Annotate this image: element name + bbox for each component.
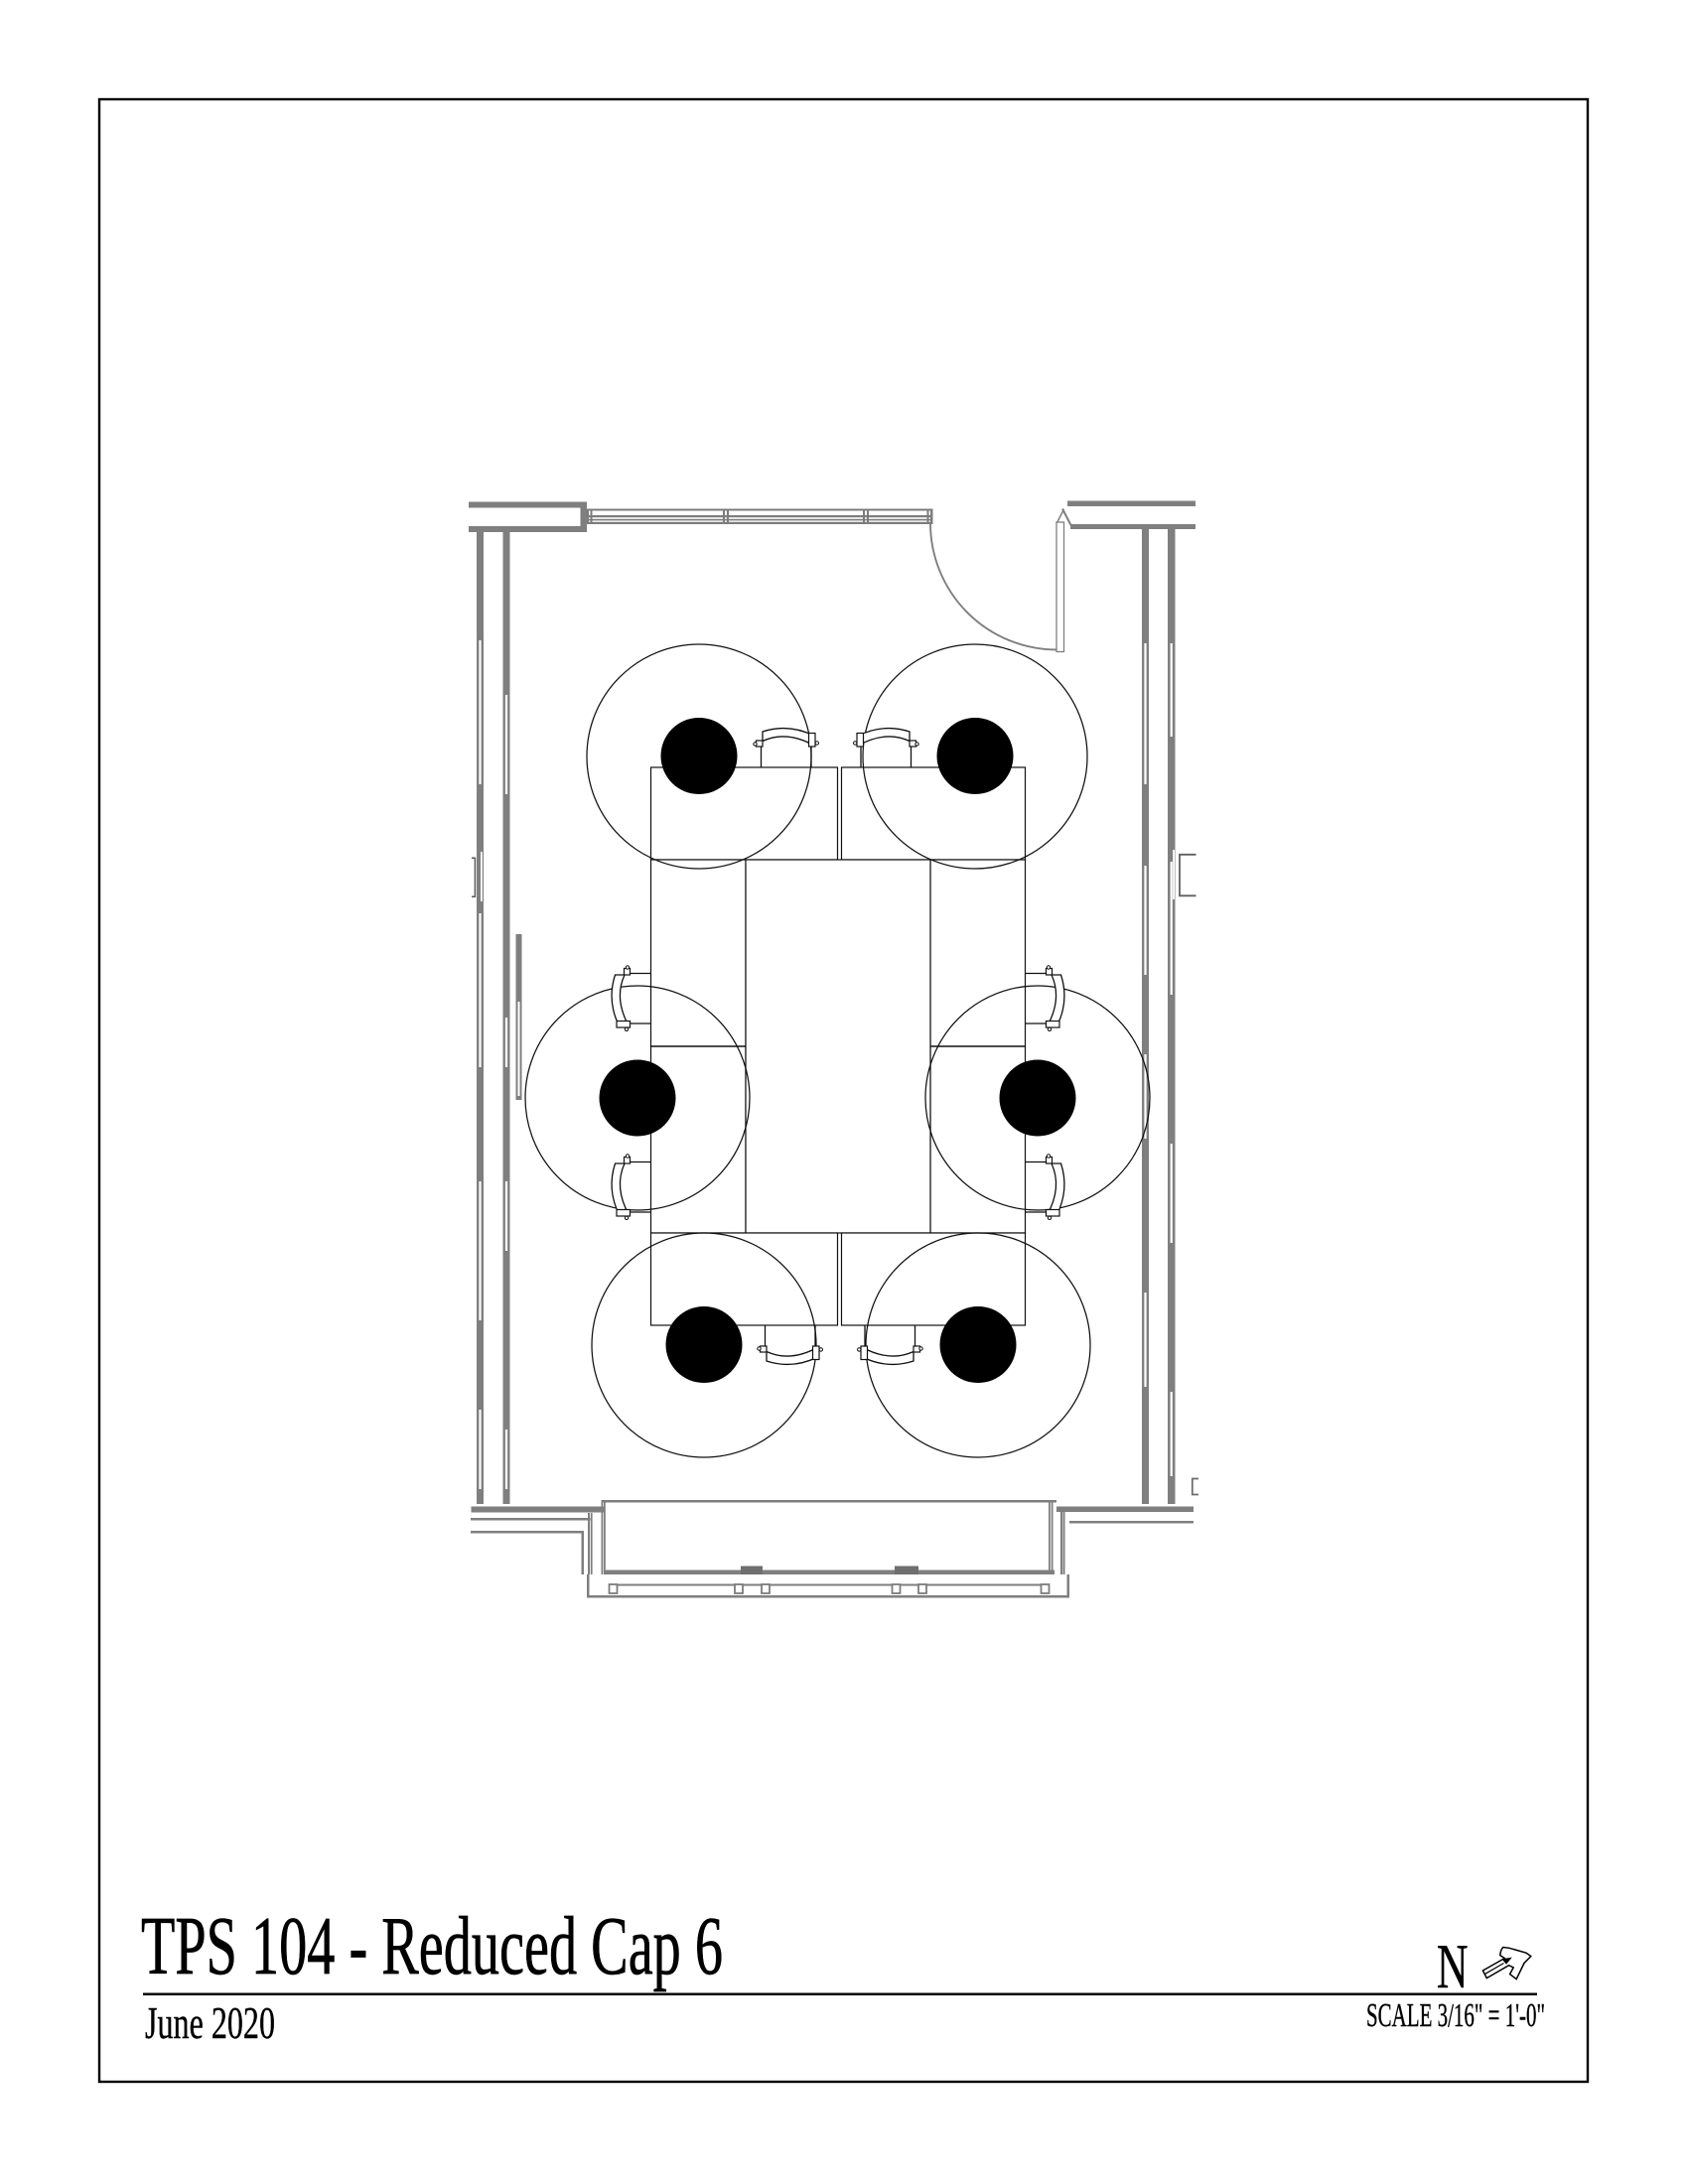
svg-text:N: N	[1437, 1931, 1469, 2001]
svg-text:TPS 104 - Reduced Cap 6: TPS 104 - Reduced Cap 6	[141, 1900, 723, 1992]
svg-text:June 2020: June 2020	[145, 1997, 275, 2048]
svg-text:SCALE 3/16" = 1'-0": SCALE 3/16" = 1'-0"	[1366, 1997, 1545, 2034]
